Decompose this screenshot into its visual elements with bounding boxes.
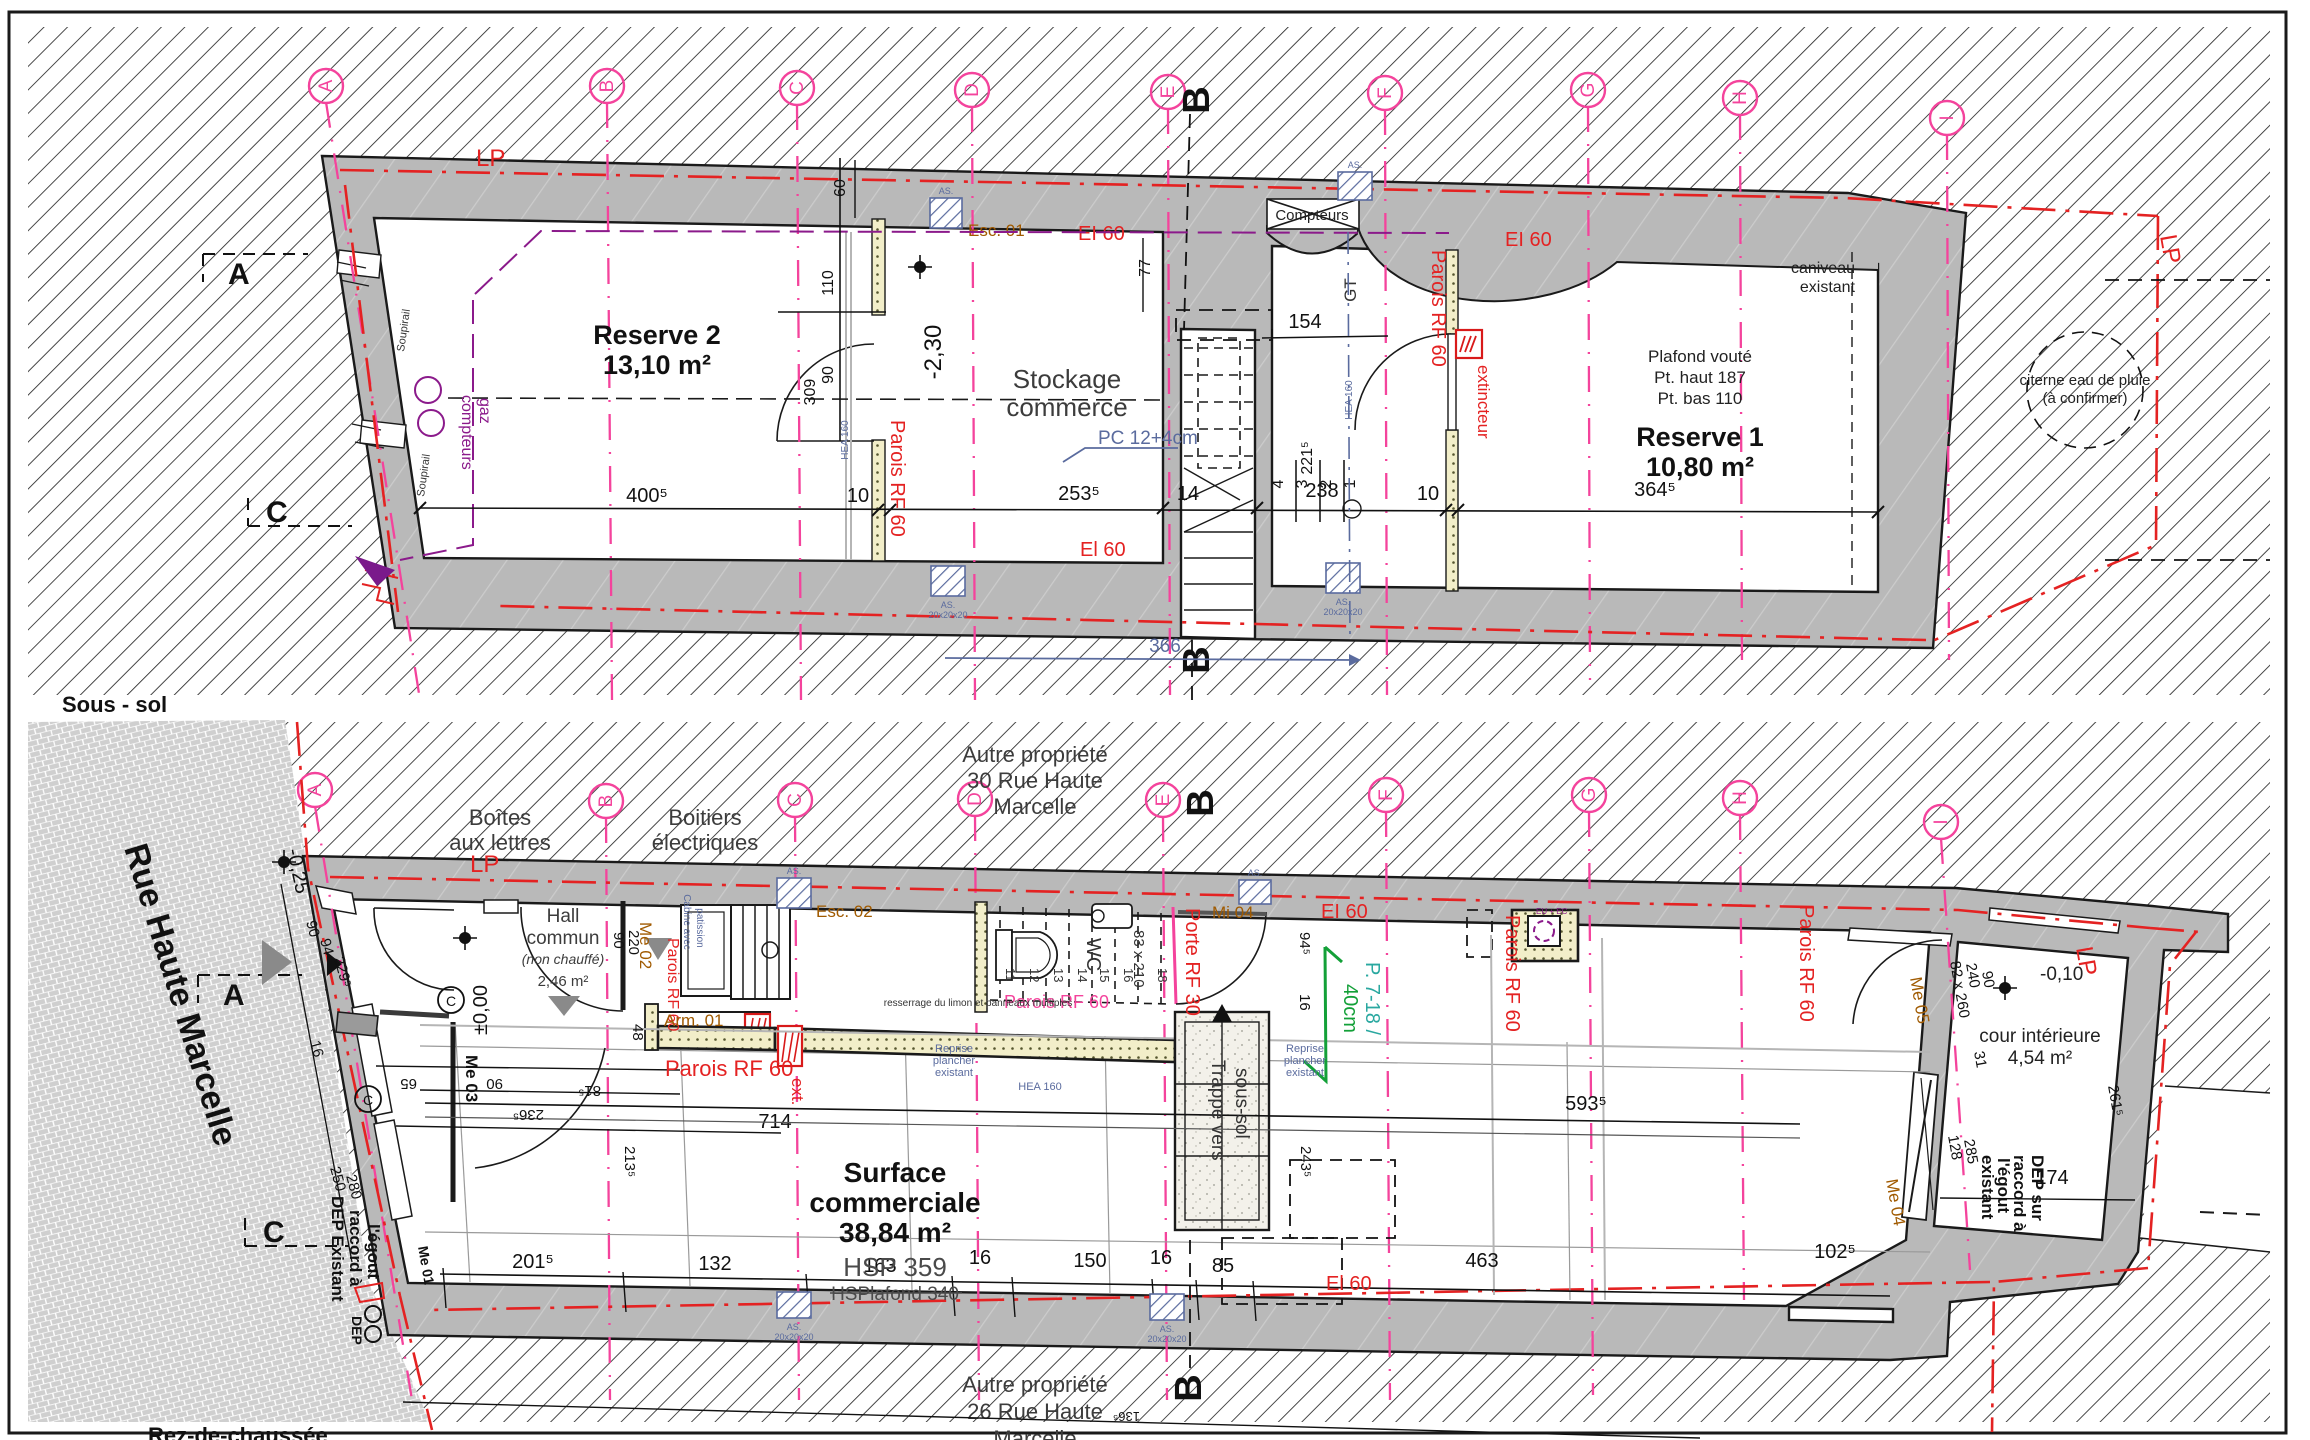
- svg-text:existant: existant: [1800, 279, 1856, 296]
- svg-text:31: 31: [1970, 1050, 1990, 1069]
- svg-text:65: 65: [400, 1075, 417, 1092]
- svg-text:Rez-de-chaussée: Rez-de-chaussée: [148, 1423, 328, 1440]
- svg-text:EI 60: EI 60: [1321, 901, 1368, 923]
- svg-text:plancher: plancher: [933, 1055, 976, 1067]
- svg-text:HSP 359: HSP 359: [843, 1252, 947, 1282]
- svg-text:20x20x20: 20x20x20: [1323, 607, 1362, 617]
- svg-text:D: D: [962, 83, 983, 97]
- svg-text:Parois RF 60: Parois RF 60: [1795, 905, 1817, 1022]
- svg-text:221⁵: 221⁵: [1299, 441, 1316, 474]
- svg-text:Marcelle: Marcelle: [993, 794, 1076, 819]
- svg-text:commerciale: commerciale: [809, 1187, 980, 1218]
- svg-text:EI 60: EI 60: [1505, 229, 1552, 251]
- svg-text:Compteurs: Compteurs: [1275, 207, 1348, 224]
- svg-text:16: 16: [1150, 1247, 1172, 1269]
- svg-text:EU + EC: EU + EC: [1536, 907, 1568, 916]
- svg-text:Porte RF 30: Porte RF 30: [1181, 908, 1203, 1016]
- svg-text:60: 60: [832, 179, 849, 197]
- svg-text:102⁵: 102⁵: [1814, 1241, 1856, 1263]
- svg-text:DEP Existant: DEP Existant: [328, 1196, 347, 1302]
- svg-text:patission: patission: [694, 908, 705, 947]
- svg-text:Marcelle: Marcelle: [993, 1426, 1076, 1440]
- svg-text:593⁵: 593⁵: [1565, 1093, 1607, 1115]
- svg-text:Surface: Surface: [844, 1157, 947, 1188]
- svg-text:366: 366: [1149, 636, 1181, 657]
- svg-text:150: 150: [1073, 1250, 1106, 1272]
- svg-text:I: I: [1937, 115, 1958, 120]
- svg-text:EI 60: EI 60: [1078, 223, 1125, 245]
- svg-text:15: 15: [1097, 968, 1112, 982]
- svg-text:463: 463: [1465, 1250, 1498, 1272]
- svg-text:Autre propriété: Autre propriété: [962, 1372, 1108, 1397]
- svg-text:B: B: [1176, 86, 1218, 113]
- svg-text:1: 1: [1342, 479, 1359, 488]
- svg-text:A: A: [316, 79, 337, 92]
- svg-text:B: B: [597, 80, 618, 93]
- svg-text:238: 238: [1305, 480, 1338, 502]
- svg-text:F: F: [1376, 789, 1397, 801]
- svg-text:201⁵: 201⁵: [512, 1251, 554, 1273]
- svg-text:213⁵: 213⁵: [621, 1146, 638, 1177]
- svg-text:Reserve 1: Reserve 1: [1636, 422, 1764, 452]
- svg-text:90: 90: [610, 932, 627, 949]
- svg-text:Trappe vers: Trappe vers: [1207, 1060, 1228, 1161]
- svg-text:compteurs: compteurs: [458, 395, 475, 470]
- svg-text:13: 13: [1051, 968, 1066, 982]
- svg-text:DEP: DEP: [349, 1316, 365, 1345]
- svg-text:plancher: plancher: [1284, 1055, 1327, 1067]
- svg-text:20x20x20: 20x20x20: [774, 1332, 813, 1342]
- svg-text:B: B: [596, 795, 617, 808]
- svg-text:sous-sol: sous-sol: [1231, 1068, 1252, 1139]
- svg-text:El 60: El 60: [1080, 539, 1126, 561]
- svg-text:DEP sur: DEP sur: [2028, 1155, 2047, 1221]
- svg-text:Reserve 2: Reserve 2: [593, 320, 721, 350]
- svg-text:2,46 m²: 2,46 m²: [538, 973, 589, 990]
- svg-text:Mi 04: Mi 04: [1212, 903, 1254, 922]
- svg-text:AS.: AS.: [787, 866, 802, 876]
- svg-text:30 Rue Haute: 30 Rue Haute: [967, 768, 1103, 793]
- svg-text:électriques: électriques: [652, 830, 758, 855]
- svg-text:10,80 m²: 10,80 m²: [1646, 452, 1754, 482]
- svg-text:AS.: AS.: [787, 1322, 802, 1332]
- svg-text:LP: LP: [470, 851, 499, 878]
- svg-text:400⁵: 400⁵: [626, 485, 668, 507]
- svg-text:Stockage: Stockage: [1013, 364, 1121, 394]
- svg-text:LP: LP: [2154, 232, 2186, 266]
- svg-text:Arm. 01: Arm. 01: [664, 1011, 724, 1030]
- svg-text:A: A: [228, 258, 250, 291]
- svg-text:AS.: AS.: [1160, 1324, 1175, 1334]
- svg-text:253⁵: 253⁵: [1058, 483, 1100, 505]
- svg-text:Cabine avec: Cabine avec: [681, 894, 692, 950]
- svg-text:Esc. 01: Esc. 01: [968, 221, 1025, 240]
- svg-text:cour intérieure: cour intérieure: [1979, 1026, 2100, 1047]
- svg-text:H: H: [1730, 91, 1751, 105]
- svg-text:HEA 160: HEA 160: [840, 420, 851, 460]
- svg-text:Plafond vouté: Plafond vouté: [1648, 347, 1752, 366]
- svg-text:90: 90: [820, 366, 837, 384]
- svg-text:Esc. 02: Esc. 02: [816, 902, 873, 921]
- svg-text:El 60: El 60: [1326, 1273, 1372, 1295]
- svg-text:110: 110: [820, 270, 837, 296]
- svg-text:Boîtes: Boîtes: [469, 805, 531, 830]
- svg-text:38,84 m²: 38,84 m²: [839, 1217, 951, 1248]
- svg-text:citerne eau de pluie: citerne eau de pluie: [2020, 372, 2151, 389]
- svg-text:48: 48: [629, 1024, 646, 1041]
- svg-text:Parois RF 60: Parois RF 60: [886, 420, 908, 537]
- svg-text:243⁵: 243⁵: [1297, 1146, 1314, 1177]
- svg-text:16: 16: [1121, 968, 1136, 982]
- svg-text:90: 90: [1978, 970, 1998, 989]
- svg-text:existant: existant: [935, 1067, 973, 1079]
- svg-text:20x20x20: 20x20x20: [1147, 1334, 1186, 1344]
- svg-text:l'égout: l'égout: [364, 1224, 383, 1279]
- svg-text:10: 10: [847, 485, 869, 507]
- svg-text:Parois RF 60: Parois RF 60: [1501, 915, 1523, 1032]
- svg-text:14: 14: [1177, 483, 1199, 505]
- svg-text:C: C: [363, 1092, 373, 1108]
- svg-text:Pt. bas 110: Pt. bas 110: [1658, 389, 1743, 408]
- svg-text:Sous - sol: Sous - sol: [62, 692, 167, 717]
- svg-text:existant: existant: [1978, 1155, 1997, 1220]
- svg-text:4: 4: [1270, 479, 1287, 488]
- svg-text:HEA 160: HEA 160: [1018, 1081, 1061, 1093]
- svg-text:90: 90: [486, 1075, 503, 1092]
- svg-text:aux lettres: aux lettres: [449, 830, 551, 855]
- svg-text:Reprise: Reprise: [1286, 1043, 1324, 1055]
- svg-text:±0,00: ±0,00: [470, 985, 492, 1035]
- svg-text:H: H: [1730, 791, 1751, 805]
- svg-text:AS.: AS.: [1348, 160, 1363, 170]
- svg-text:G: G: [1579, 788, 1600, 803]
- svg-text:commerce: commerce: [1006, 392, 1127, 422]
- svg-text:18: 18: [1155, 968, 1170, 982]
- svg-text:40cm: 40cm: [1339, 984, 1361, 1033]
- svg-text:PC 12+4cm: PC 12+4cm: [1098, 428, 1198, 449]
- svg-text:81⁵: 81⁵: [578, 1082, 601, 1099]
- svg-text:Boitiers: Boitiers: [668, 805, 741, 830]
- svg-text:F: F: [1375, 87, 1396, 99]
- svg-text:AS.: AS.: [939, 186, 954, 196]
- svg-text:extincteur: extincteur: [1474, 365, 1493, 439]
- svg-text:HSPlafond 340: HSPlafond 340: [831, 1284, 959, 1305]
- svg-text:Me 03: Me 03: [462, 1055, 481, 1102]
- svg-text:existant: existant: [1286, 1067, 1324, 1079]
- svg-text:AS.: AS.: [1336, 597, 1351, 607]
- svg-text:commun: commun: [527, 928, 600, 949]
- svg-text:12: 12: [1027, 968, 1042, 982]
- svg-text:(non chauffé): (non chauffé): [522, 951, 605, 967]
- svg-text:C: C: [446, 993, 456, 1009]
- svg-text:B: B: [1180, 789, 1222, 816]
- svg-text:Pt. haut 187: Pt. haut 187: [1654, 368, 1746, 387]
- svg-text:16: 16: [969, 1247, 991, 1269]
- svg-text:WC: WC: [1082, 938, 1104, 971]
- svg-text:4,54 m²: 4,54 m²: [2008, 1048, 2072, 1069]
- svg-text:AS.: AS.: [941, 600, 956, 610]
- svg-text:Reprise: Reprise: [935, 1043, 973, 1055]
- svg-text:C: C: [785, 793, 806, 807]
- svg-text:AS.: AS.: [1248, 868, 1263, 878]
- svg-text:309: 309: [802, 379, 819, 406]
- svg-text:ext.: ext.: [788, 1078, 807, 1105]
- svg-text:132: 132: [698, 1253, 731, 1275]
- svg-text:A: A: [223, 979, 245, 1012]
- svg-text:gaz: gaz: [476, 398, 493, 424]
- svg-text:(à confirmer): (à confirmer): [2042, 390, 2127, 407]
- svg-text:E: E: [1153, 794, 1174, 807]
- svg-text:154: 154: [1288, 311, 1321, 333]
- svg-text:A: A: [305, 783, 326, 796]
- svg-text:20x20x20: 20x20x20: [928, 610, 967, 620]
- svg-text:C: C: [787, 81, 808, 95]
- svg-text:C: C: [263, 1216, 285, 1249]
- svg-text:364⁵: 364⁵: [1634, 479, 1676, 501]
- svg-text:13,10 m²: 13,10 m²: [603, 350, 711, 380]
- svg-text:14: 14: [1075, 968, 1090, 982]
- svg-text:LP: LP: [476, 145, 505, 172]
- svg-text:GT: GT: [1341, 278, 1360, 302]
- svg-text:16: 16: [1296, 994, 1313, 1011]
- svg-text:11: 11: [1003, 968, 1018, 982]
- svg-text:Hall: Hall: [547, 906, 580, 927]
- svg-text:-2,30: -2,30: [920, 325, 947, 380]
- svg-text:B: B: [1168, 1374, 1210, 1401]
- svg-text:236⁵: 236⁵: [513, 1106, 544, 1123]
- svg-text:caniveau: caniveau: [1791, 260, 1855, 277]
- svg-text:P. 7-18 /: P. 7-18 /: [1361, 962, 1383, 1035]
- svg-text:I: I: [1931, 819, 1952, 824]
- svg-text:94⁵: 94⁵: [1296, 932, 1313, 955]
- svg-text:Autre propriété: Autre propriété: [962, 742, 1108, 767]
- svg-text:D: D: [965, 792, 986, 806]
- svg-text:raccord à: raccord à: [346, 1210, 365, 1287]
- svg-text:C: C: [266, 496, 288, 529]
- svg-text:G: G: [1578, 83, 1599, 98]
- svg-text:resserrage du limon et panneau: resserrage du limon et panneaux multiple…: [884, 998, 1072, 1009]
- svg-text:77: 77: [1137, 259, 1154, 277]
- svg-text:Parois RF 60: Parois RF 60: [1427, 250, 1449, 367]
- svg-text:Parois RF 60: Parois RF 60: [665, 1056, 793, 1081]
- svg-text:-0,10: -0,10: [2040, 964, 2083, 985]
- svg-text:10: 10: [1417, 483, 1439, 505]
- svg-text:85: 85: [1212, 1255, 1234, 1277]
